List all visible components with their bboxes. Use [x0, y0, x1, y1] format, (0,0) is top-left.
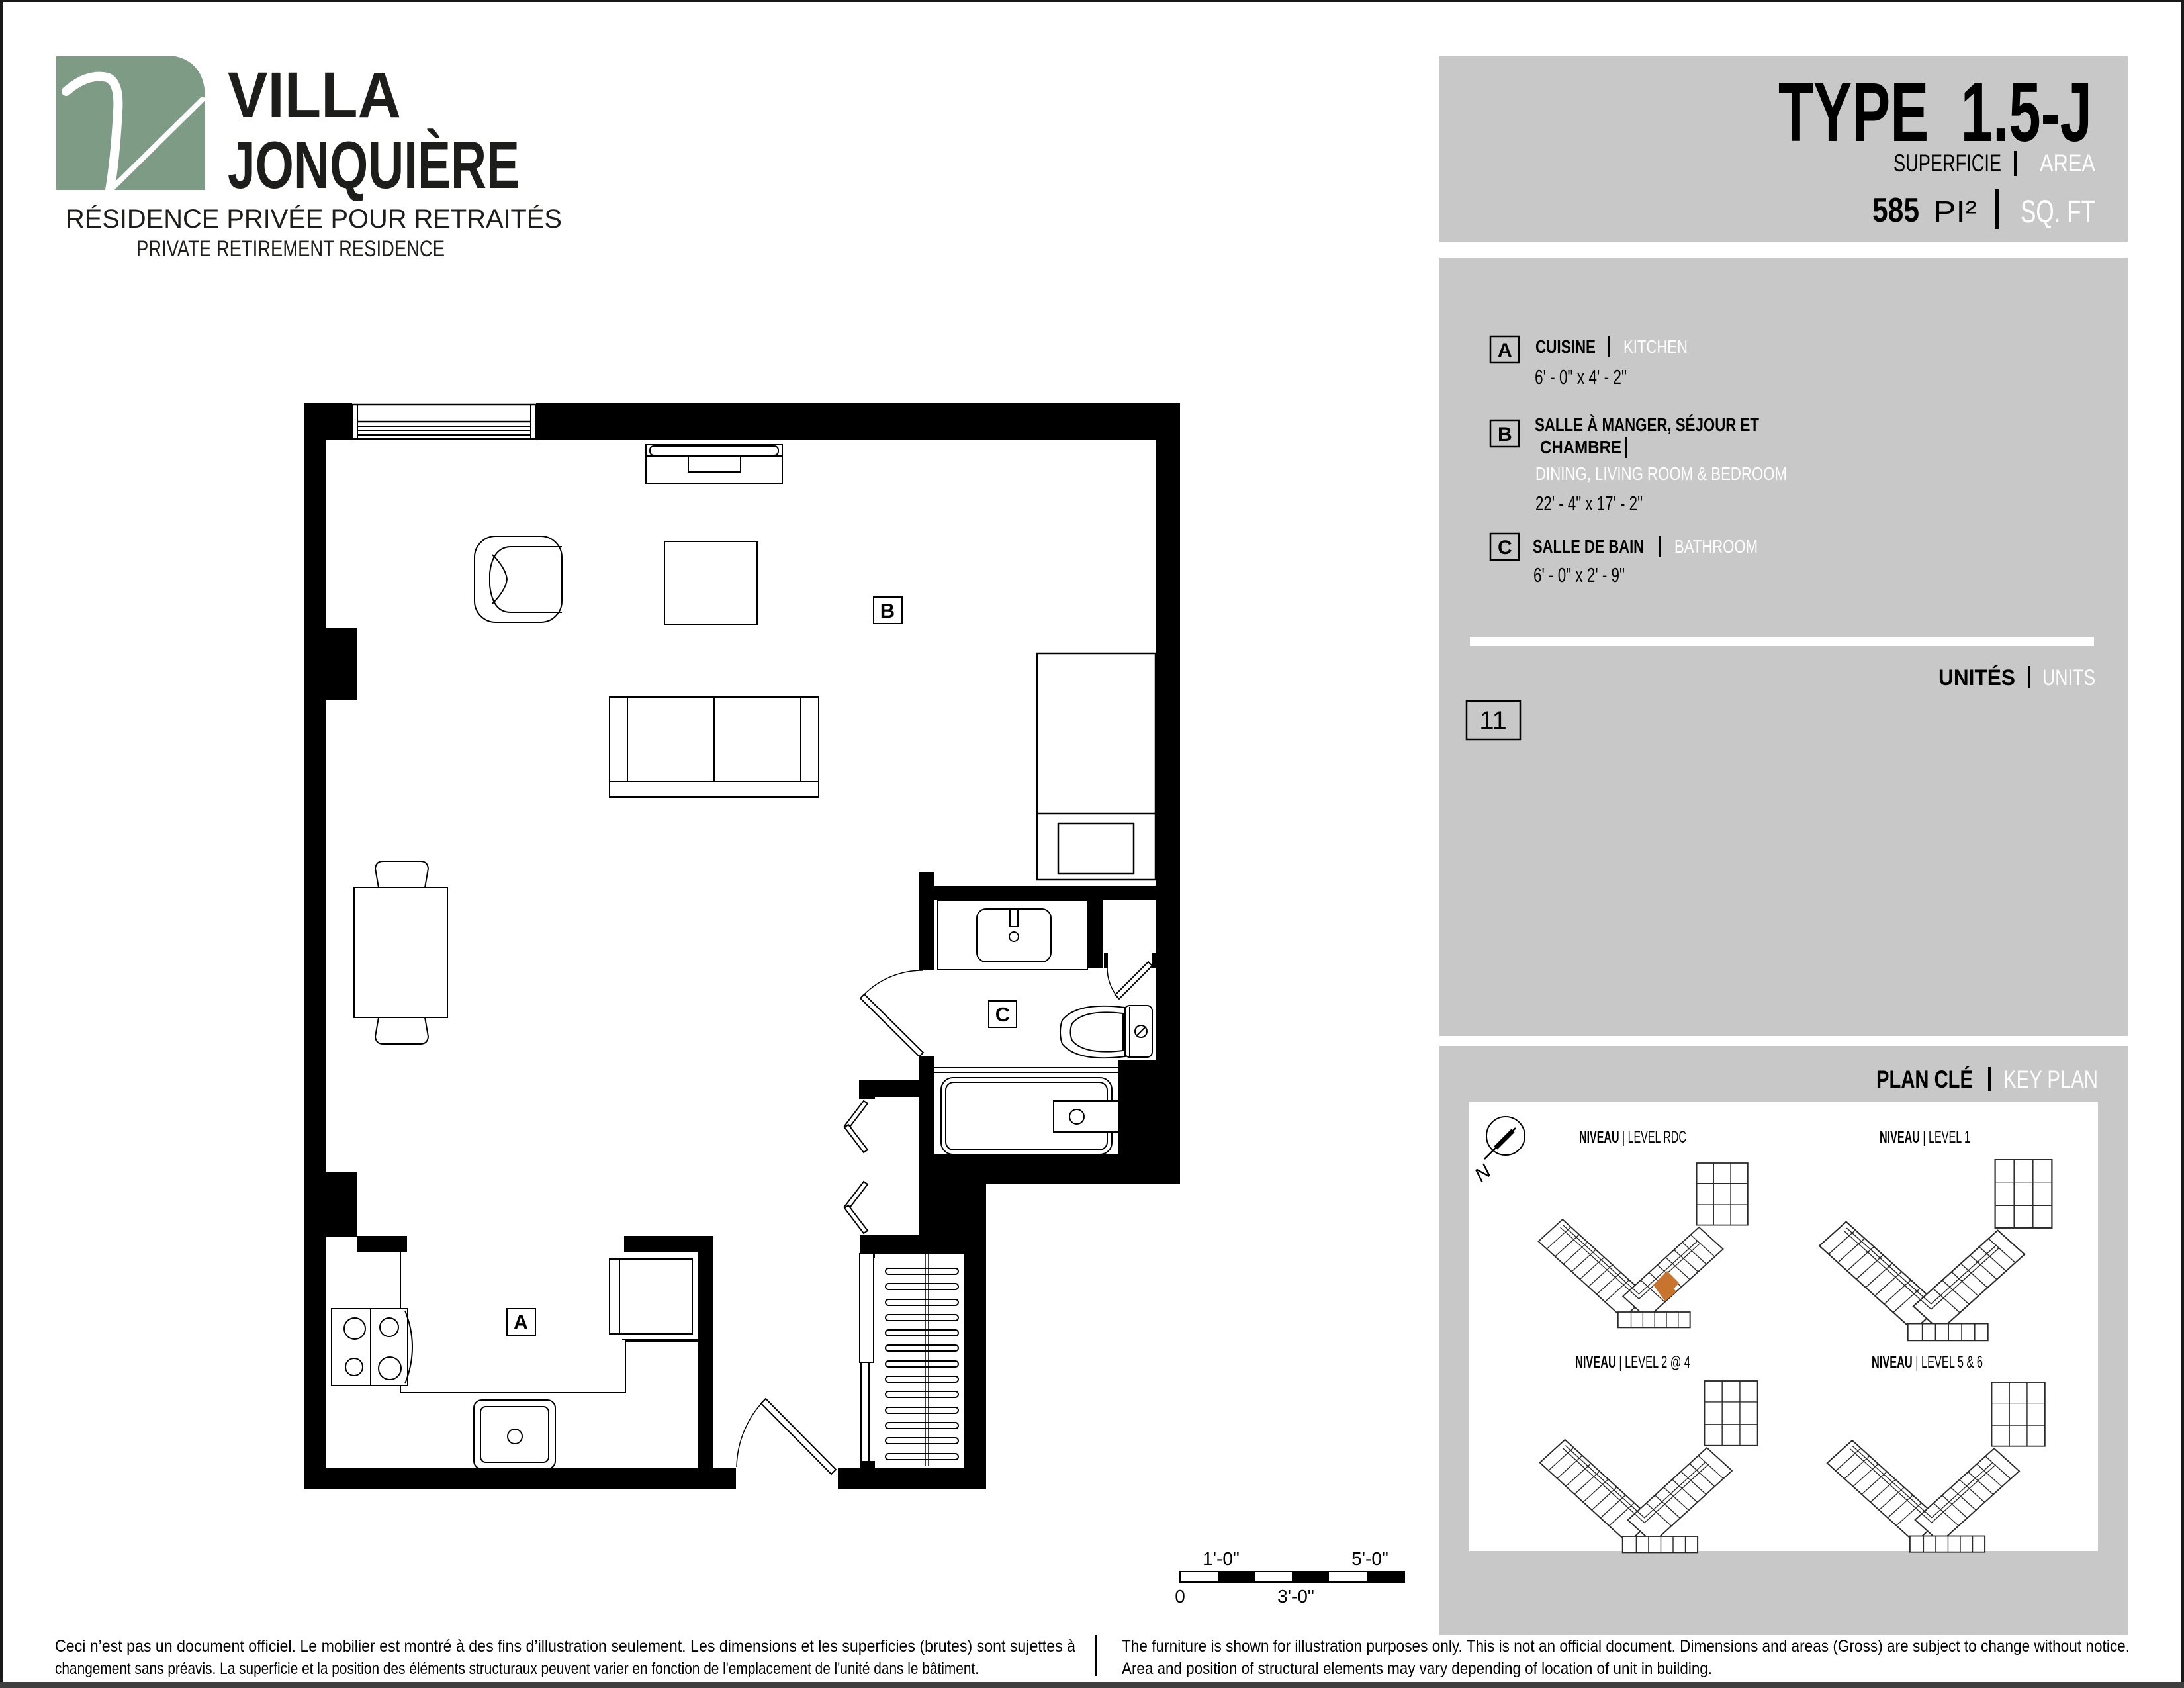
svg-text:SALLE À MANGER, SÉJOUR ET: SALLE À MANGER, SÉJOUR ET [1535, 414, 1759, 435]
svg-text:0: 0 [1175, 1586, 1185, 1607]
svg-text:3'-0": 3'-0" [1277, 1586, 1314, 1607]
svg-text:A: A [514, 1311, 528, 1334]
svg-text:SUPERFICIE: SUPERFICIE [1893, 150, 2001, 177]
svg-text:PI²: PI² [1933, 195, 1977, 228]
svg-text:SQ. FT: SQ. FT [2021, 195, 2095, 230]
svg-text:PRIVATE RETIREMENT RESIDENCE: PRIVATE RETIREMENT RESIDENCE [136, 236, 445, 261]
svg-text:C: C [1498, 537, 1512, 559]
svg-text:A: A [1498, 340, 1512, 361]
svg-text:DINING, LIVING ROOM & BEDROOM: DINING, LIVING ROOM & BEDROOM [1535, 463, 1787, 484]
svg-text:AREA: AREA [2040, 150, 2095, 177]
svg-text:6' - 0" x 4' - 2": 6' - 0" x 4' - 2" [1535, 365, 1627, 389]
svg-text:585: 585 [1872, 191, 1919, 230]
svg-text:B: B [880, 599, 895, 622]
svg-text:CUISINE: CUISINE [1535, 336, 1596, 357]
svg-text:JONQUIÈRE: JONQUIÈRE [228, 128, 520, 203]
svg-text:C: C [995, 1003, 1010, 1026]
svg-text:changement sans préavis. La su: changement sans préavis. La superficie e… [55, 1660, 979, 1678]
svg-text:VILLA: VILLA [228, 59, 401, 131]
svg-text:KITCHEN: KITCHEN [1623, 336, 1688, 357]
svg-text:1'-0": 1'-0" [1203, 1548, 1240, 1569]
svg-text:NIVEAU | LEVEL 5 & 6: NIVEAU | LEVEL 5 & 6 [1872, 1353, 1983, 1372]
svg-text:NIVEAU | LEVEL RDC: NIVEAU | LEVEL RDC [1579, 1128, 1686, 1147]
svg-text:Area and position of structura: Area and position of structural elements… [1122, 1660, 1712, 1678]
svg-text:5'-0": 5'-0" [1351, 1548, 1388, 1569]
svg-text:6' - 0" x 2' - 9": 6' - 0" x 2' - 9" [1533, 563, 1625, 586]
svg-text:SALLE DE BAIN: SALLE DE BAIN [1533, 536, 1644, 557]
svg-text:PLAN CLÉ: PLAN CLÉ [1876, 1066, 1973, 1093]
svg-text:TYPE 1.5-J: TYPE 1.5-J [1778, 66, 2092, 159]
svg-text:UNITS: UNITS [2042, 665, 2095, 690]
svg-text:UNITÉS: UNITÉS [1938, 665, 2015, 690]
svg-text:22' - 4" x 17' - 2": 22' - 4" x 17' - 2" [1535, 492, 1643, 515]
svg-text:The furniture is shown for ill: The furniture is shown for illustration … [1122, 1637, 2130, 1656]
svg-text:B: B [1498, 424, 1512, 445]
svg-text:Ceci n’est pas un document off: Ceci n’est pas un document officiel. Le … [55, 1637, 1075, 1656]
svg-text:CHAMBRE: CHAMBRE [1540, 437, 1621, 457]
svg-text:RÉSIDENCE PRIVÉE POUR RETRAITÉ: RÉSIDENCE PRIVÉE POUR RETRAITÉS [66, 204, 562, 234]
svg-text:KEY PLAN: KEY PLAN [2003, 1066, 2098, 1093]
svg-text:11: 11 [1479, 706, 1507, 735]
svg-text:NIVEAU | LEVEL 1: NIVEAU | LEVEL 1 [1880, 1128, 1970, 1147]
svg-text:NIVEAU | LEVEL 2 @ 4: NIVEAU | LEVEL 2 @ 4 [1575, 1353, 1690, 1372]
svg-text:BATHROOM: BATHROOM [1674, 536, 1758, 557]
